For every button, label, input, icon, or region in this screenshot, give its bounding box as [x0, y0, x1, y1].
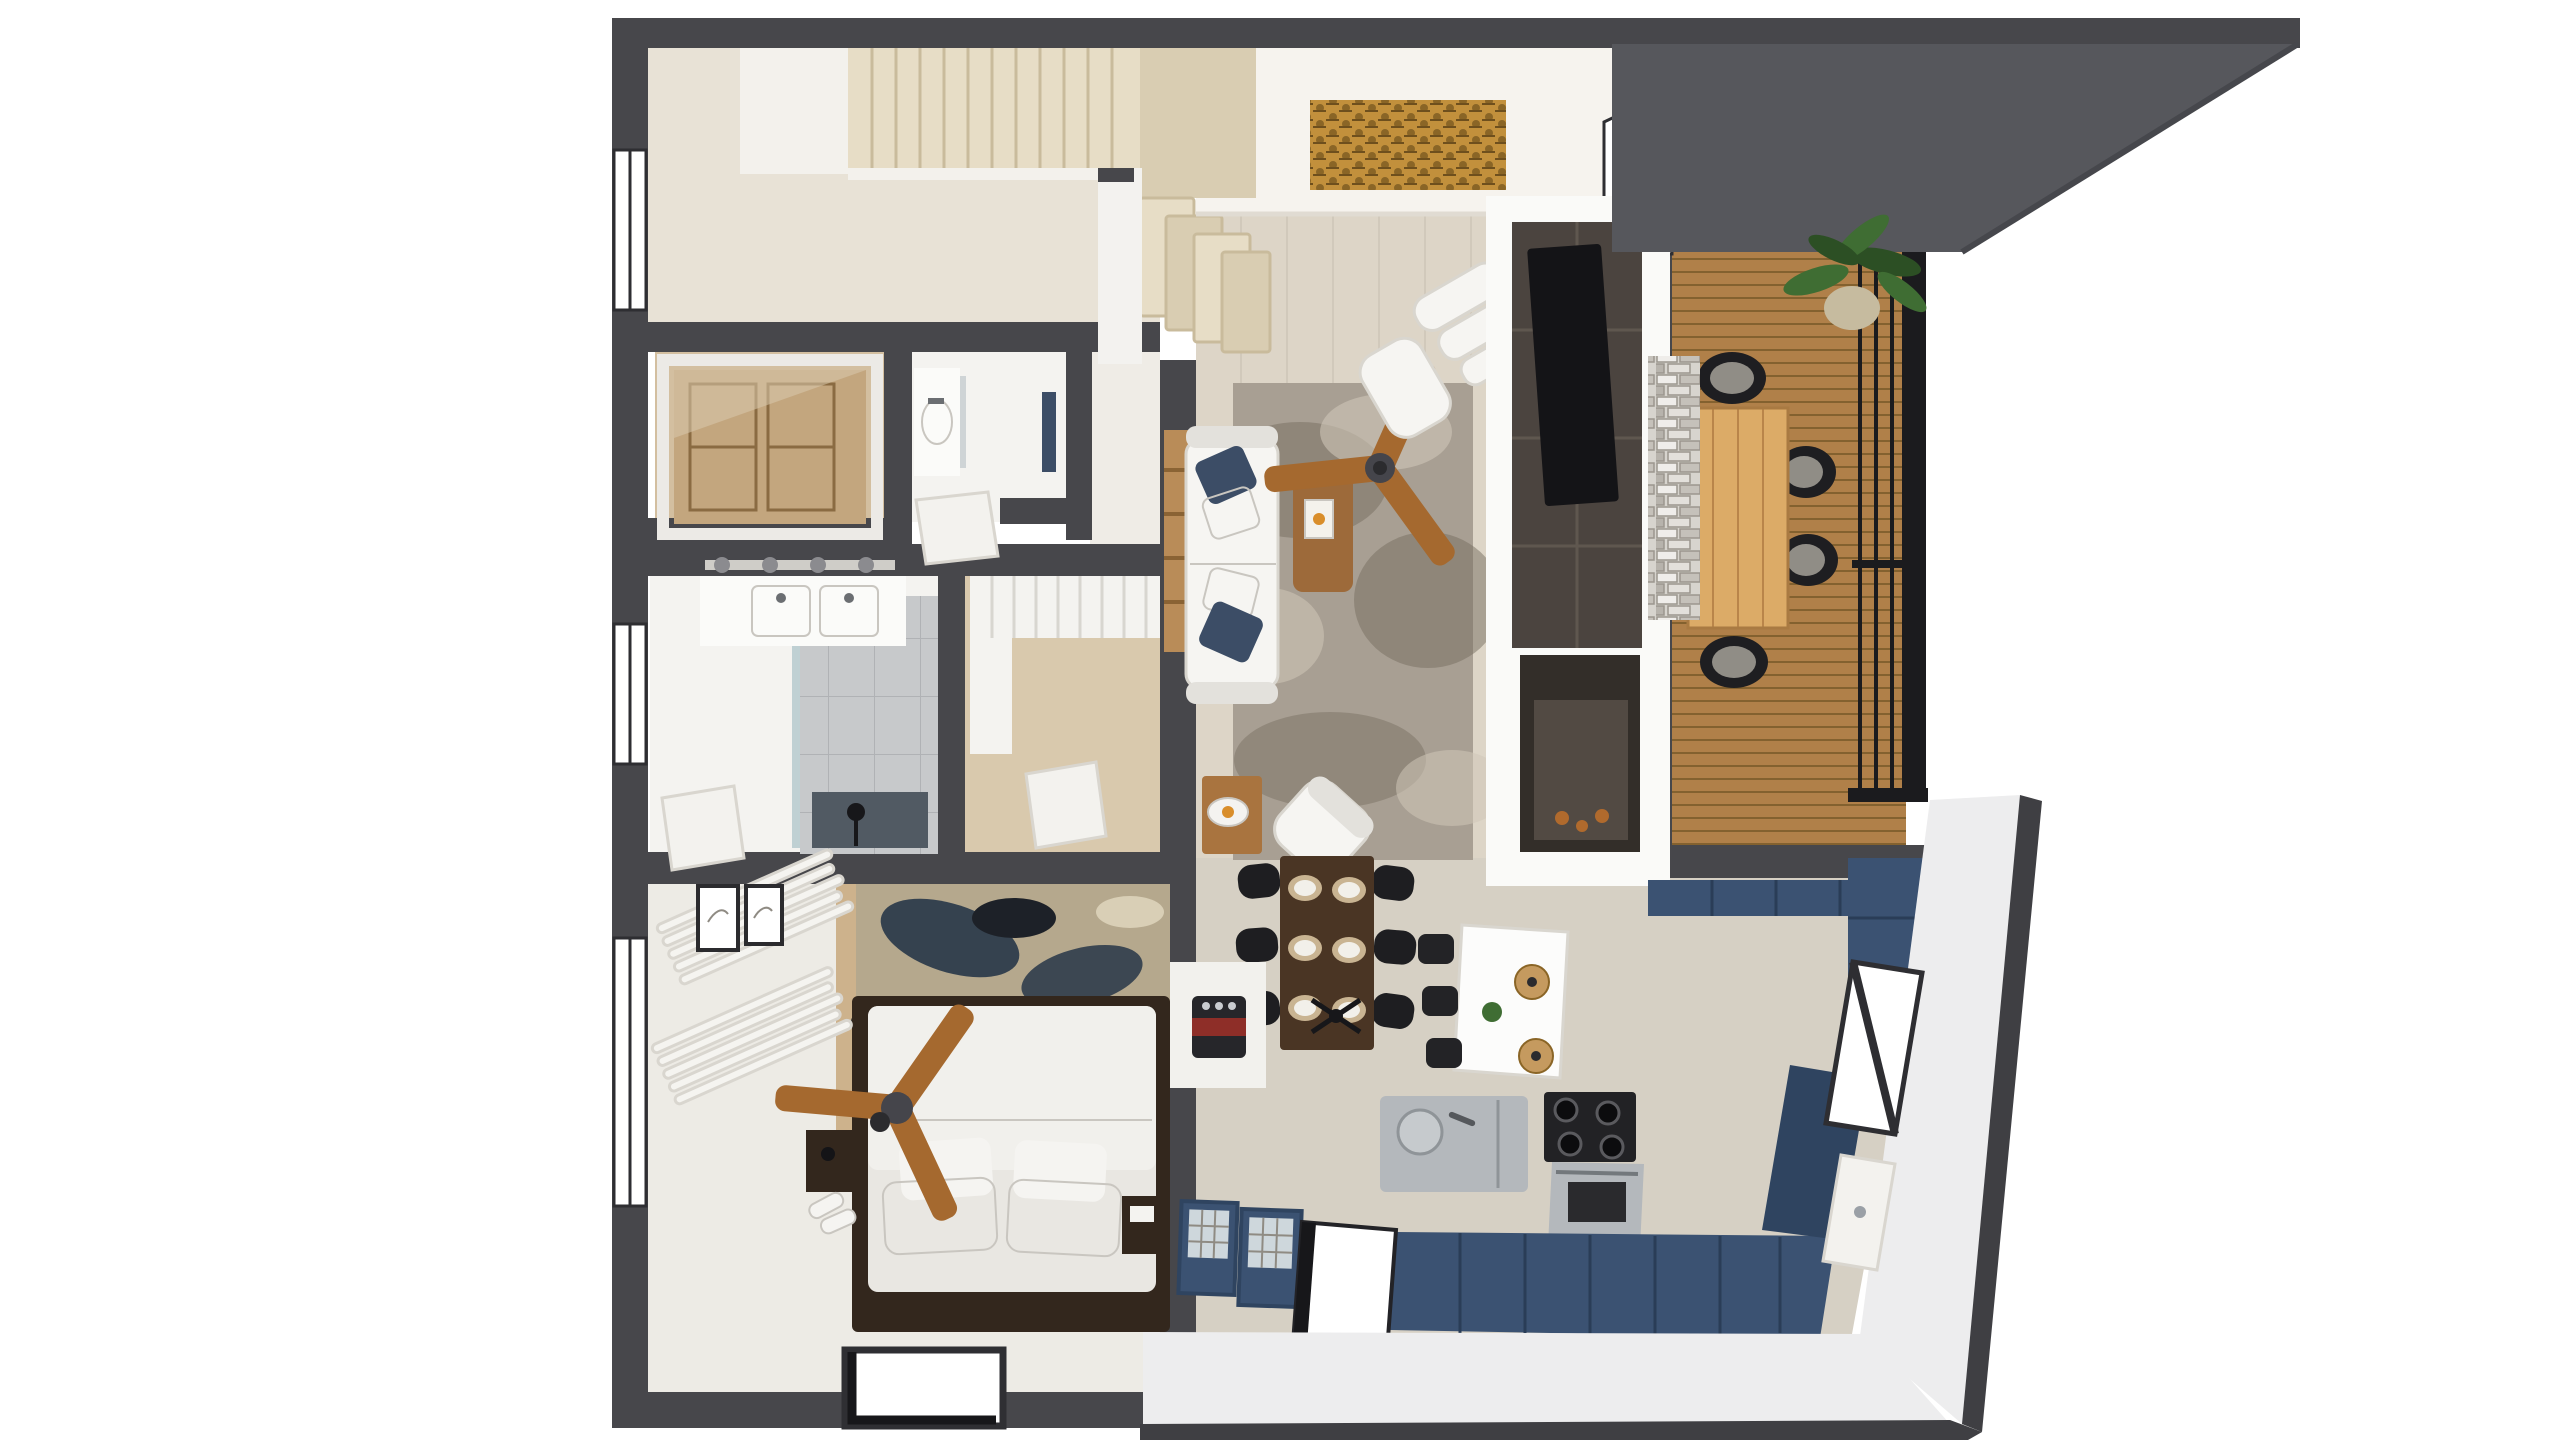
stone-column: [1648, 356, 1700, 620]
powder-faucet: [928, 398, 944, 404]
gold-wall-art: [1310, 100, 1506, 190]
stair-side-wall-cap: [1098, 168, 1134, 182]
bathroom-door: [662, 786, 744, 870]
powder-door: [916, 492, 998, 564]
coffee-table: [1293, 474, 1353, 592]
espresso-machine-red-band: [1192, 1018, 1246, 1036]
nightstand-left: [806, 1130, 864, 1192]
outdoor-chair: [1698, 352, 1766, 404]
bed: [852, 996, 1170, 1332]
base-cabinets-bottom: [1390, 1232, 1836, 1338]
floor-plan-svg: [0, 0, 2560, 1440]
outdoor-dining-table: [1688, 408, 1788, 628]
kitchen-sink: [1398, 1110, 1442, 1154]
faucet-left: [776, 593, 786, 603]
cooktop: [1544, 1092, 1636, 1162]
island-plant: [1482, 1002, 1502, 1022]
wardrobe-top: [970, 576, 1160, 638]
nightstand-right: [1122, 1196, 1168, 1254]
espresso-station: [1170, 962, 1266, 1088]
bottom-cut-wall: [1143, 1332, 1950, 1424]
tv-fireplace-wall: [1486, 196, 1700, 886]
shower-floor-dark: [812, 792, 928, 848]
wall-powder-bottom-stub: [1000, 498, 1092, 524]
powder-vanity: [914, 368, 960, 476]
firebox-glass: [1534, 700, 1628, 840]
wall-top: [612, 18, 2300, 48]
outdoor-chair: [1700, 636, 1768, 688]
framed-art-pair: [698, 886, 782, 950]
stairs-landing: [1140, 48, 1256, 198]
stainless-counter: [1380, 1096, 1528, 1192]
wine-cabinets: [1178, 1201, 1301, 1307]
ladder-shelf: [1164, 430, 1188, 652]
bed-pillow-white-right: [1013, 1140, 1108, 1203]
bedroom-floor-opening: [845, 1350, 1003, 1426]
oven-window: [1568, 1182, 1626, 1222]
stairs-stringer: [848, 168, 1140, 180]
nightstand-right-paper: [1130, 1206, 1154, 1222]
entry-window: [614, 150, 646, 310]
door-handle: [1854, 1206, 1866, 1218]
stairs-upper-flight: [848, 48, 1140, 174]
bedroom-window: [614, 938, 646, 1206]
stair-storage-box: [740, 48, 848, 174]
bathroom-window: [614, 624, 646, 764]
wall-bath-closet-divider: [938, 576, 965, 854]
stair-side-wall: [1098, 168, 1142, 364]
wardrobe-side: [970, 638, 1012, 754]
side-table: [1202, 776, 1262, 854]
wall-closet-powder-divider: [884, 352, 912, 542]
walkin-door: [1026, 762, 1106, 848]
floor-plan-render: [0, 0, 2560, 1440]
nightstand-left-lamp: [821, 1147, 835, 1161]
sofa: [1186, 426, 1278, 704]
powder-mirror: [960, 376, 966, 468]
faucet-right: [844, 593, 854, 603]
powder-navy-accent: [1042, 392, 1056, 472]
closet-room: [663, 360, 877, 534]
